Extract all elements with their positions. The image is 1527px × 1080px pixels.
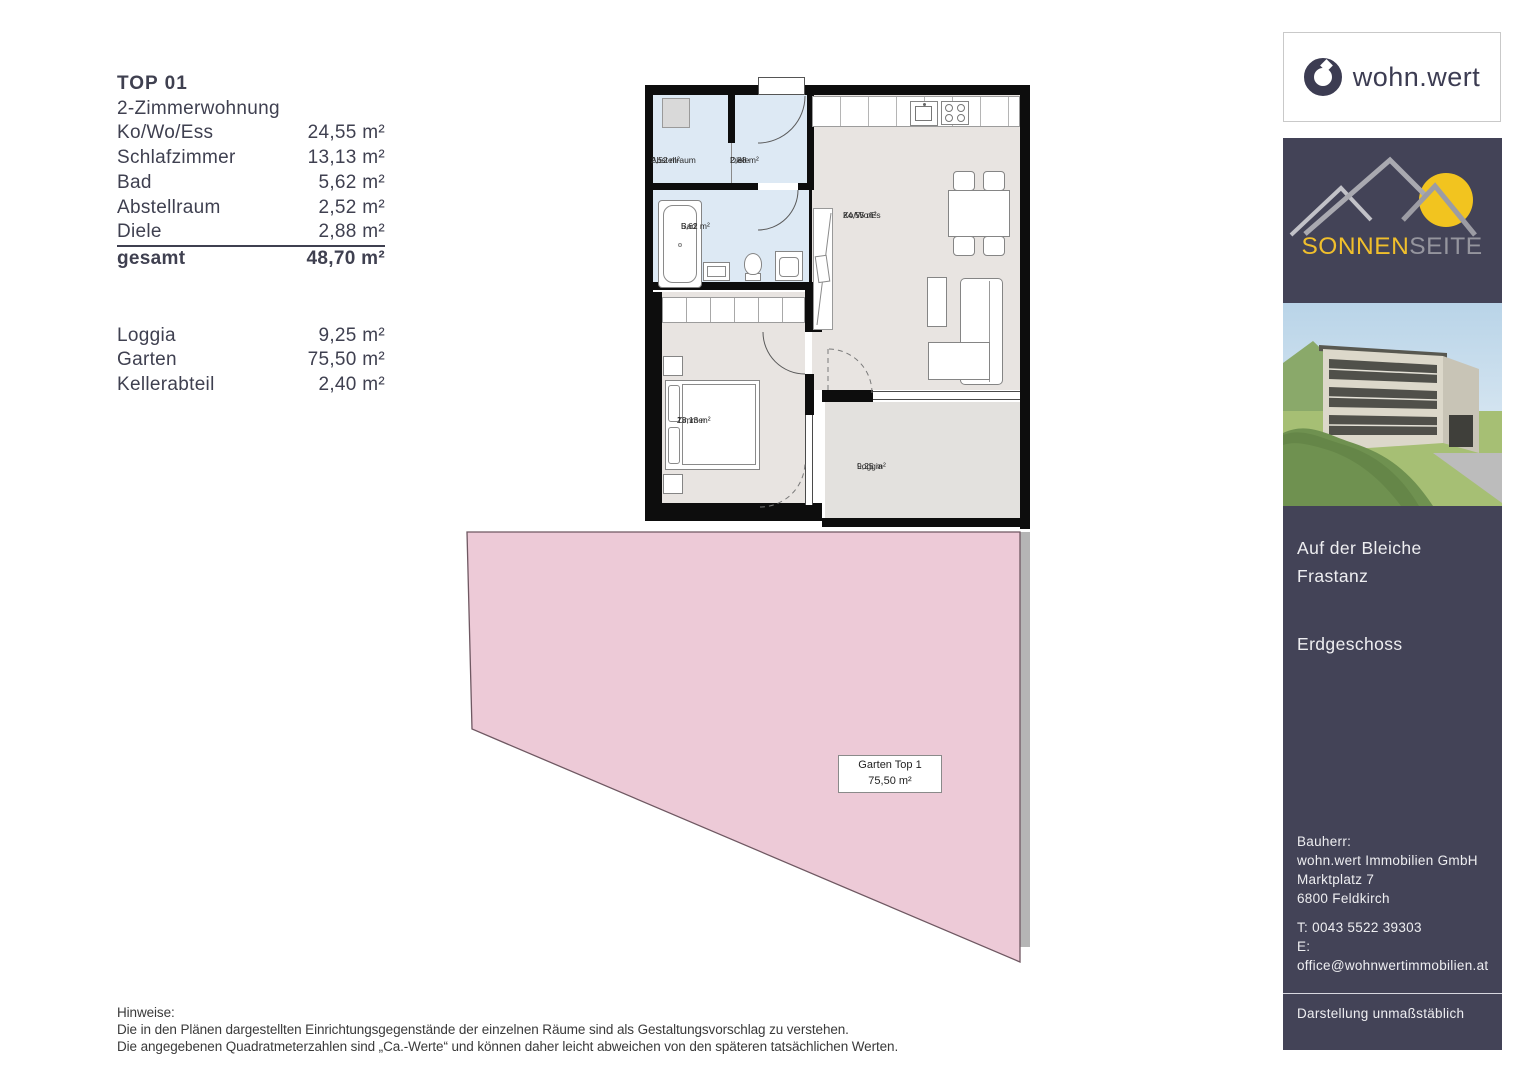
dining-chair — [953, 171, 975, 191]
wohnwert-logo-box: wohn.wert — [1283, 32, 1501, 122]
washing-machine — [775, 251, 803, 281]
builder-block: Bauherr: wohn.wert Immobilien GmbH Markt… — [1297, 832, 1478, 908]
garden-area-plan — [460, 525, 1035, 970]
row-label: Kellerabteil — [117, 373, 215, 398]
wall-bottom — [645, 503, 822, 521]
pillow — [668, 427, 680, 464]
washing-machine-door — [779, 257, 799, 277]
row-label: Loggia — [117, 324, 176, 349]
unit-title: TOP 01 — [117, 72, 385, 97]
wall-loggia-north — [822, 390, 873, 402]
storage-cabinet — [662, 98, 690, 128]
dining-chair — [953, 236, 975, 256]
sidebar-panel: SONNENSEITE Auf der Bleiche Frastanz Erd… — [1283, 138, 1502, 1050]
burner — [957, 114, 965, 122]
nightstand — [663, 356, 683, 376]
side-table — [927, 277, 947, 327]
row-value: 2,52 m² — [318, 196, 385, 221]
project-address: Auf der Bleiche Frastanz — [1297, 534, 1422, 590]
builder-company: wohn.wert Immobilien GmbH — [1297, 851, 1478, 870]
burner — [945, 114, 953, 122]
logo-notch-shape — [1320, 59, 1333, 72]
garden-label: Garten Top 1 75,50 m² — [838, 755, 942, 793]
room-loggia — [825, 402, 1020, 519]
wall-abstellraum-diele — [728, 95, 735, 143]
toilet — [744, 253, 762, 275]
sidebar-divider — [1283, 993, 1502, 994]
dining-chair — [983, 171, 1005, 191]
garden-area: 75,50 m² — [839, 774, 941, 790]
area-table: TOP 01 2-Zimmerwohnung Ko/Wo/Ess 24,55 m… — [117, 72, 385, 398]
row-value: 24,55 m² — [308, 121, 385, 146]
footnote-line: Die angegebenen Quadratmeterzahlen sind … — [117, 1038, 1237, 1055]
wohnwert-logo-text: wohn.wert — [1353, 62, 1481, 93]
brand-wordmark: SONNENSEITE — [1301, 233, 1482, 260]
bad-door-opening — [758, 183, 798, 190]
entrance-door-leaf — [758, 77, 805, 95]
garden-name: Garten Top 1 — [839, 758, 941, 774]
nightstand — [663, 474, 683, 494]
room-diele — [735, 95, 807, 185]
table-row: Ko/Wo/Ess 24,55 m² — [117, 121, 385, 146]
kitchen-stove — [941, 101, 969, 125]
bathtub-drain — [678, 243, 682, 247]
scale-disclaimer: Darstellung unmaßstäblich — [1297, 1006, 1464, 1021]
wohnwert-logo-icon — [1304, 58, 1342, 96]
loggia-edge — [822, 518, 1020, 527]
washbasin — [703, 262, 730, 281]
sonnenseite-logo: SONNENSEITE — [1283, 138, 1502, 273]
builder-street: Marktplatz 7 — [1297, 870, 1478, 889]
sofa-chaise — [928, 342, 990, 380]
unit-subtitle: 2-Zimmerwohnung — [117, 97, 385, 122]
row-value: 75,50 m² — [308, 348, 385, 373]
footnote-heading: Hinweise: — [117, 1004, 1237, 1021]
living-window-front — [873, 391, 1020, 400]
table-row: Kellerabteil 2,40 m² — [117, 373, 385, 398]
row-value: 9,25 m² — [318, 324, 385, 349]
wall-right — [1020, 85, 1030, 529]
contact-email: E: office@wohnwertimmobilien.at — [1297, 937, 1502, 975]
contact-phone: T: 0043 5522 39303 — [1297, 918, 1502, 937]
builder-heading: Bauherr: — [1297, 832, 1478, 851]
contact-block: T: 0043 5522 39303 E: office@wohnwertimm… — [1297, 918, 1502, 975]
floor-plan: Abstellraum 2,52 m² Diele 2,88 m² Bad 5,… — [645, 85, 1030, 530]
row-label: Bad — [117, 171, 152, 196]
footnote-line: Die in den Plänen dargestellten Einricht… — [117, 1021, 1237, 1038]
row-label: Garten — [117, 348, 177, 373]
row-label: Schlafzimmer — [117, 146, 236, 171]
garage-opening — [1449, 415, 1473, 447]
floor-name: Erdgeschoss — [1297, 634, 1403, 655]
kitchen-sink — [910, 101, 938, 126]
table-row: Garten 75,50 m² — [117, 348, 385, 373]
wall-left-upper — [645, 85, 653, 292]
burner — [957, 104, 965, 112]
sink-faucet — [923, 103, 926, 106]
row-value: 2,40 m² — [318, 373, 385, 398]
wall-top — [645, 85, 1030, 95]
table-total-row: gesamt 48,70 m² — [117, 247, 385, 272]
row-value: 2,88 m² — [318, 220, 385, 245]
table-row: Loggia 9,25 m² — [117, 324, 385, 349]
table-row: Schlafzimmer 13,13 m² — [117, 146, 385, 171]
outdoor-areas: Loggia 9,25 m² Garten 75,50 m² Kellerabt… — [117, 324, 385, 398]
wall-zimmer-south-jamb — [805, 374, 814, 415]
table-row: Bad 5,62 m² — [117, 171, 385, 196]
burner — [945, 104, 953, 112]
address-line2: Frastanz — [1297, 562, 1422, 590]
mountain-main-icon — [1305, 160, 1426, 234]
balcony-rail — [1329, 425, 1437, 426]
row-label: Abstellraum — [117, 196, 221, 221]
row-label: Diele — [117, 220, 162, 245]
wardrobe-bedroom — [662, 297, 805, 323]
dining-chair — [983, 236, 1005, 256]
wardrobe-hall — [813, 208, 833, 330]
row-label: gesamt — [117, 247, 185, 272]
bathtub — [658, 200, 702, 288]
address-line1: Auf der Bleiche — [1297, 534, 1422, 562]
table-row: Abstellraum 2,52 m² — [117, 196, 385, 221]
wall-left-lower — [645, 292, 662, 521]
row-value: 13,13 m² — [308, 146, 385, 171]
row-value: 5,62 m² — [318, 171, 385, 196]
sink-basin — [915, 106, 932, 121]
washbasin-inner — [707, 266, 726, 277]
dining-table — [948, 190, 1010, 237]
garden-polygon — [467, 532, 1020, 962]
table-row: Diele 2,88 m² — [117, 220, 385, 247]
footnotes: Hinweise: Die in den Plänen dargestellte… — [117, 1004, 1237, 1055]
builder-city: 6800 Feldkirch — [1297, 889, 1478, 908]
building-render-image — [1283, 303, 1502, 506]
row-label: Ko/Wo/Ess — [117, 121, 213, 146]
row-value: 48,70 m² — [307, 247, 385, 272]
zimmer-window — [805, 415, 813, 505]
